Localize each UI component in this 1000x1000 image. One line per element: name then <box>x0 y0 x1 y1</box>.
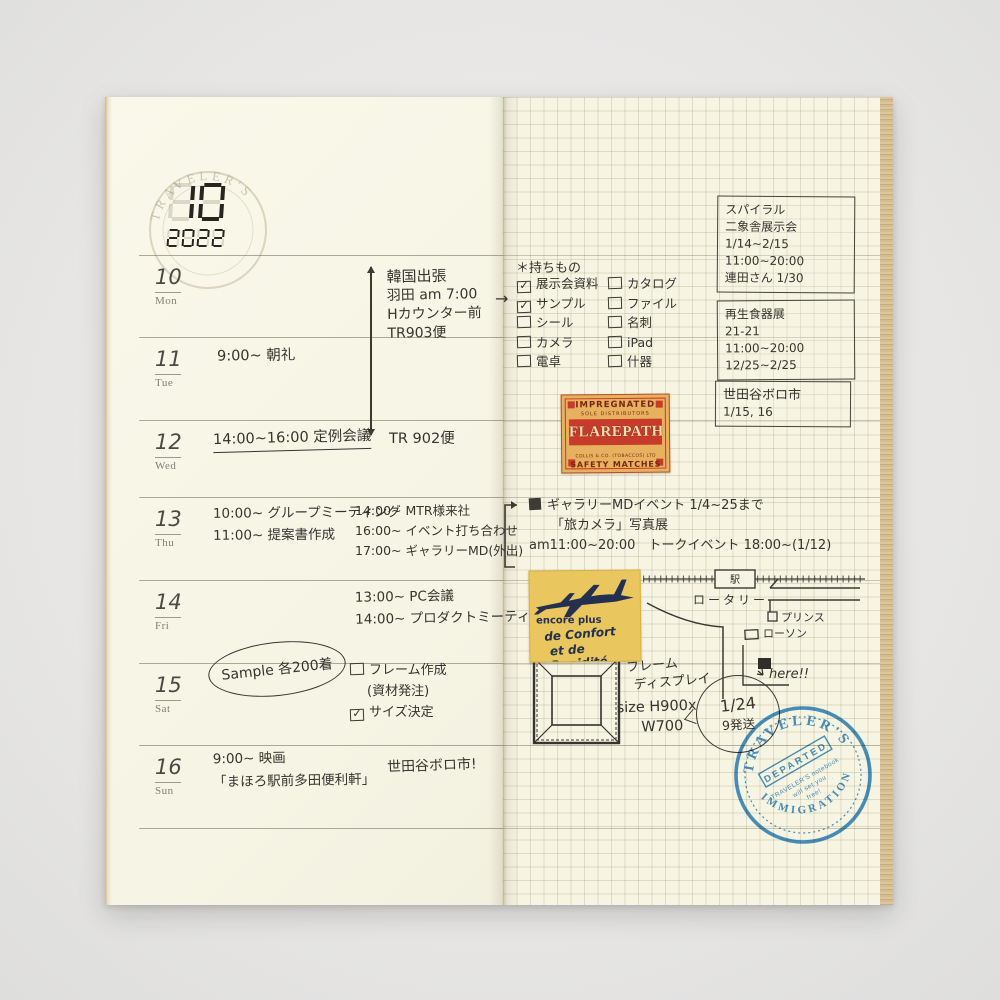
date-cell-mon: 10 Mon <box>155 265 182 307</box>
week-rule <box>139 580 503 581</box>
checkbox-checked: ✓ <box>517 300 531 312</box>
checkbox <box>608 335 622 347</box>
airline-sticker: encore plus de Confort et de Rapidité <box>529 569 642 662</box>
entry-mon: 韓国出張 羽田 am 7:00 Hカウンター前 TR903便 <box>386 266 482 344</box>
map-label-lawson: ローソン <box>763 625 807 641</box>
airline-text1: encore plus <box>536 615 602 627</box>
svg-text:駅: 駅 <box>730 574 740 586</box>
entry-fri: 13:00~ PC会議14:00~ プロダクトミーティング <box>355 583 558 631</box>
memo-box-spiral: スパイラル二象舎展示会 1/14~2/1511:00~20:00 連田さん 1/… <box>717 196 856 294</box>
day-label: Fri <box>155 620 182 632</box>
date-cell-thu: 13 Thu <box>155 507 182 549</box>
memo-box-exhibition: 再生食器展21-21 11:00~20:0012/25~2/25 <box>717 300 856 381</box>
gallery-event-note: ギャラリーMDイベント 1/4~25まで 「旅カメラ」写真展 am11:00~2… <box>529 496 831 556</box>
matchbox-maker: COLLIS & CO. (TOBACCOS) LTD <box>562 454 669 460</box>
connector-bracket <box>501 495 529 571</box>
year-display <box>166 229 228 251</box>
day-label: Tue <box>155 377 182 389</box>
date-number: 11 <box>155 347 182 371</box>
date-cell-tue: 11 Tue <box>155 347 182 389</box>
checkbox <box>608 277 622 289</box>
matchbox-distributors: SOLE DISTRIBUTORS <box>562 411 669 418</box>
trip-span-arrow <box>370 267 372 435</box>
checkbox-checked: ✓ <box>350 709 364 721</box>
entry-thu-right: 14:00~ MTR様来社16:00~ イベント打ち合わせ17:00~ ギャラリ… <box>355 501 523 561</box>
week-rule <box>139 255 503 256</box>
notebook-photo: TRAVELER'S 10 Mon 11 Tue 12 Wed 13 Thu <box>0 0 1000 1000</box>
week-rule <box>139 497 503 498</box>
matchbox-brand: FLAREPATH <box>569 419 662 446</box>
day-label: Wed <box>155 460 182 472</box>
page-edge-left <box>105 97 112 905</box>
date-number: 15 <box>155 673 182 697</box>
checkbox-checked: ✓ <box>517 281 531 293</box>
day-label: Sun <box>155 785 182 797</box>
entry-wed: 14:00~16:00 定例会議 <box>213 426 371 451</box>
matchbox-top-text: IMPREGNATED <box>562 400 669 411</box>
checkbox <box>608 296 622 308</box>
memo-box-boroichi: 世田谷ボロ市1/15, 16 <box>715 381 851 428</box>
entry-sun-market: 世田谷ボロ市! <box>387 753 477 776</box>
day-label: Mon <box>155 295 182 307</box>
date-number: 14 <box>155 590 182 614</box>
week-rule <box>139 420 503 421</box>
sample-note: Sample 各200着 <box>220 653 333 685</box>
day-label: Thu <box>155 537 182 549</box>
date-number: 10 <box>155 265 182 289</box>
checkbox <box>517 355 531 367</box>
filled-checkbox <box>529 498 542 511</box>
week-rule <box>139 828 503 829</box>
checkbox <box>517 316 531 328</box>
underlined-note: 14:00~16:00 定例会議 <box>213 424 372 453</box>
travelers-immigration-stamp: TRAVELER'S IMMIGRATION DEPARTED TRAVELER… <box>720 692 887 859</box>
checkbox <box>350 663 364 675</box>
date-cell-sun: 16 Sun <box>155 755 182 797</box>
date-cell-sat: 15 Sat <box>155 673 182 715</box>
date-number: 12 <box>155 430 182 454</box>
frame-sketch <box>529 653 625 749</box>
matchbox-bottom-text: SAFETY MATCHES <box>562 460 669 470</box>
entry-mon-return-flight: TR 902便 <box>389 427 455 448</box>
month-display <box>168 183 231 225</box>
entry-sat-tasks: フレーム作成 (資材発注) ✓サイズ決定 <box>350 660 447 723</box>
entry-tue: 9:00~ 朝礼 <box>217 343 296 365</box>
date-cell-wed: 12 Wed <box>155 430 182 472</box>
map-label-here: here!! <box>769 667 809 682</box>
checkbox <box>608 355 622 367</box>
flarepath-matchbox-sticker: IMPREGNATED SOLE DISTRIBUTORS FLAREPATH … <box>561 394 671 474</box>
day-label: Sat <box>155 703 182 715</box>
packing-col2: カタログ ファイル 名刺 iPad 什器 <box>608 274 677 372</box>
page-edge <box>880 97 893 905</box>
date-number: 13 <box>155 507 182 531</box>
date-cell-fri: 14 Fri <box>155 590 182 632</box>
entry-sun: 9:00~ 映画「まほろ駅前多田便利軒」 <box>213 746 376 795</box>
checkbox <box>517 335 531 347</box>
checkbox <box>608 316 622 328</box>
packing-col1: ✓展示会資料 ✓サンプル シール カメラ 電卓 <box>517 274 599 372</box>
packing-arrow: → <box>495 289 508 308</box>
map-label-rotary: ロータリー <box>693 591 768 608</box>
notebook-spread: TRAVELER'S 10 Mon 11 Tue 12 Wed 13 Thu <box>105 97 893 905</box>
map-label-prince: プリンス <box>781 609 825 625</box>
date-number: 16 <box>155 755 182 779</box>
